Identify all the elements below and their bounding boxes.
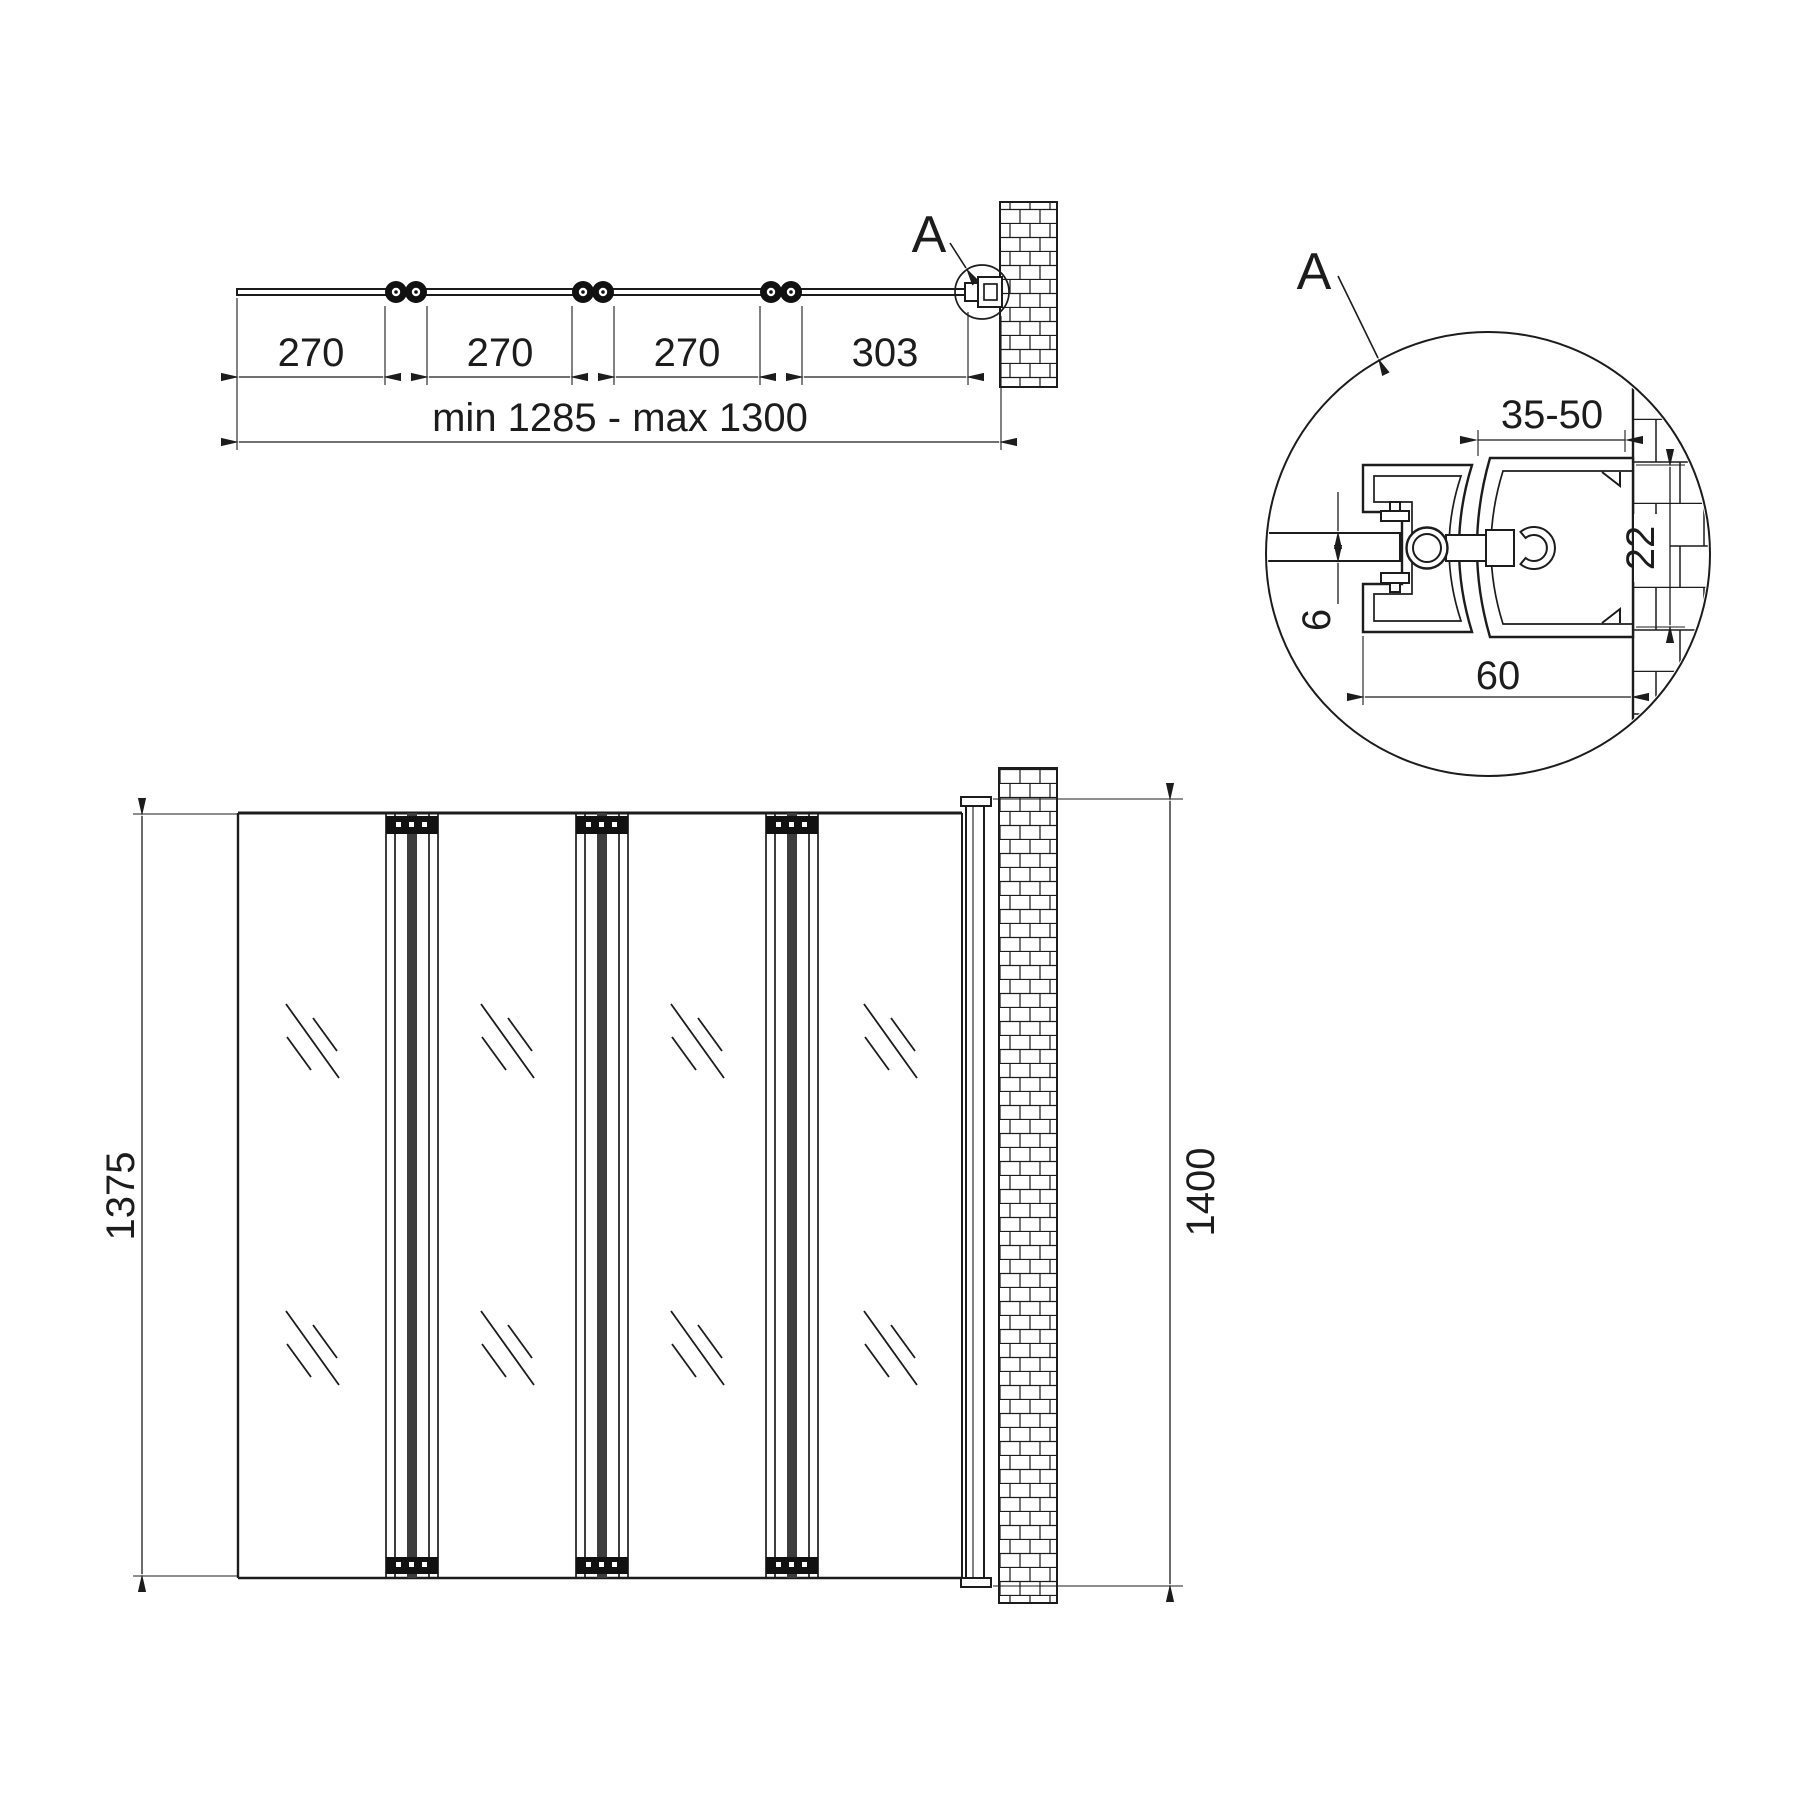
- detail-a-leader: [950, 243, 966, 268]
- glass-reflection: [671, 1311, 724, 1385]
- glass-section: [1266, 533, 1400, 561]
- front-view: 1375 1400: [99, 768, 1223, 1603]
- dim-label-1375: 1375: [99, 1152, 143, 1241]
- dim-label-6: 6: [1295, 609, 1339, 631]
- dim-label-35-50: 35-50: [1501, 393, 1603, 437]
- wall-bracket-plan: [965, 277, 1002, 307]
- wall-profile-front: [961, 797, 991, 1587]
- hinge-pair-2: [572, 281, 614, 303]
- glass-reflection: [481, 1311, 534, 1385]
- dim-label-22: 22: [1619, 526, 1663, 571]
- glass-reflection: [671, 1004, 724, 1078]
- hinge-column-2: [576, 813, 628, 1578]
- glass-reflection: [864, 1311, 917, 1385]
- technical-drawing-page: A 270 270 270 303 min 1285 - max 1300: [0, 0, 1800, 1800]
- glass-reflection: [286, 1004, 339, 1078]
- top-view: A 270 270 270 303 min 1285 - max 1300: [237, 202, 1057, 450]
- detail-view-a: A 35-50 22 6 60: [1266, 243, 1715, 780]
- dim-label-section-1: 270: [278, 331, 345, 375]
- detail-a-title: A: [1297, 243, 1332, 301]
- dim-label-overall: min 1285 - max 1300: [432, 396, 808, 440]
- glass-reflection: [481, 1004, 534, 1078]
- hinge-pair-1: [385, 281, 427, 303]
- glass-reflection: [864, 1004, 917, 1078]
- dim-label-1400: 1400: [1179, 1148, 1223, 1237]
- detail-a-title-leader: [1338, 276, 1378, 358]
- dim-label-section-3: 270: [654, 331, 721, 375]
- hinge-pair-3: [760, 281, 802, 303]
- dim-label-section-4: 303: [852, 331, 919, 375]
- glass-reflection: [286, 1311, 339, 1385]
- detail-a-marker-label: A: [912, 206, 947, 264]
- dim-label-section-2: 270: [467, 331, 534, 375]
- dim-label-60: 60: [1476, 654, 1521, 698]
- bath-screen-drawing: A 270 270 270 303 min 1285 - max 1300: [0, 0, 1800, 1800]
- brick-wall-front-view: [999, 768, 1057, 1603]
- hinge-column-1: [386, 813, 438, 1578]
- hinge-column-3: [766, 813, 818, 1578]
